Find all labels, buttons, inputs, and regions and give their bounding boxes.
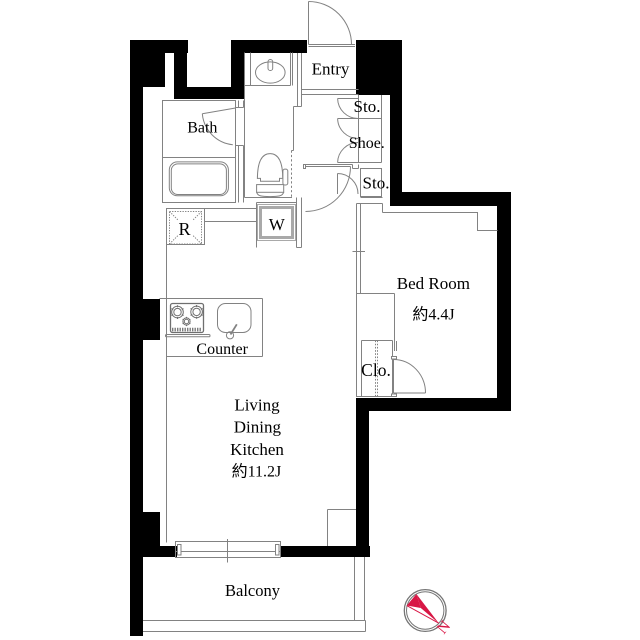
svg-text:Kitchen: Kitchen	[230, 440, 284, 459]
svg-text:Shoe.: Shoe.	[349, 135, 385, 152]
svg-text:Living: Living	[234, 395, 280, 414]
svg-text:Sto.: Sto.	[363, 174, 390, 193]
svg-text:R: R	[178, 219, 190, 239]
svg-text:W: W	[269, 215, 286, 234]
svg-text:Entry: Entry	[312, 60, 350, 79]
svg-text:Bed Room: Bed Room	[397, 274, 470, 293]
svg-text:約4.4J: 約4.4J	[412, 306, 454, 324]
svg-text:Dining: Dining	[234, 418, 282, 437]
svg-text:Counter: Counter	[196, 341, 248, 358]
svg-text:Clo.: Clo.	[361, 360, 391, 380]
svg-text:Bath: Bath	[187, 120, 217, 137]
svg-text:Sto.: Sto.	[354, 97, 381, 116]
svg-text:Balcony: Balcony	[225, 581, 281, 600]
svg-text:約11.2J: 約11.2J	[232, 463, 282, 481]
